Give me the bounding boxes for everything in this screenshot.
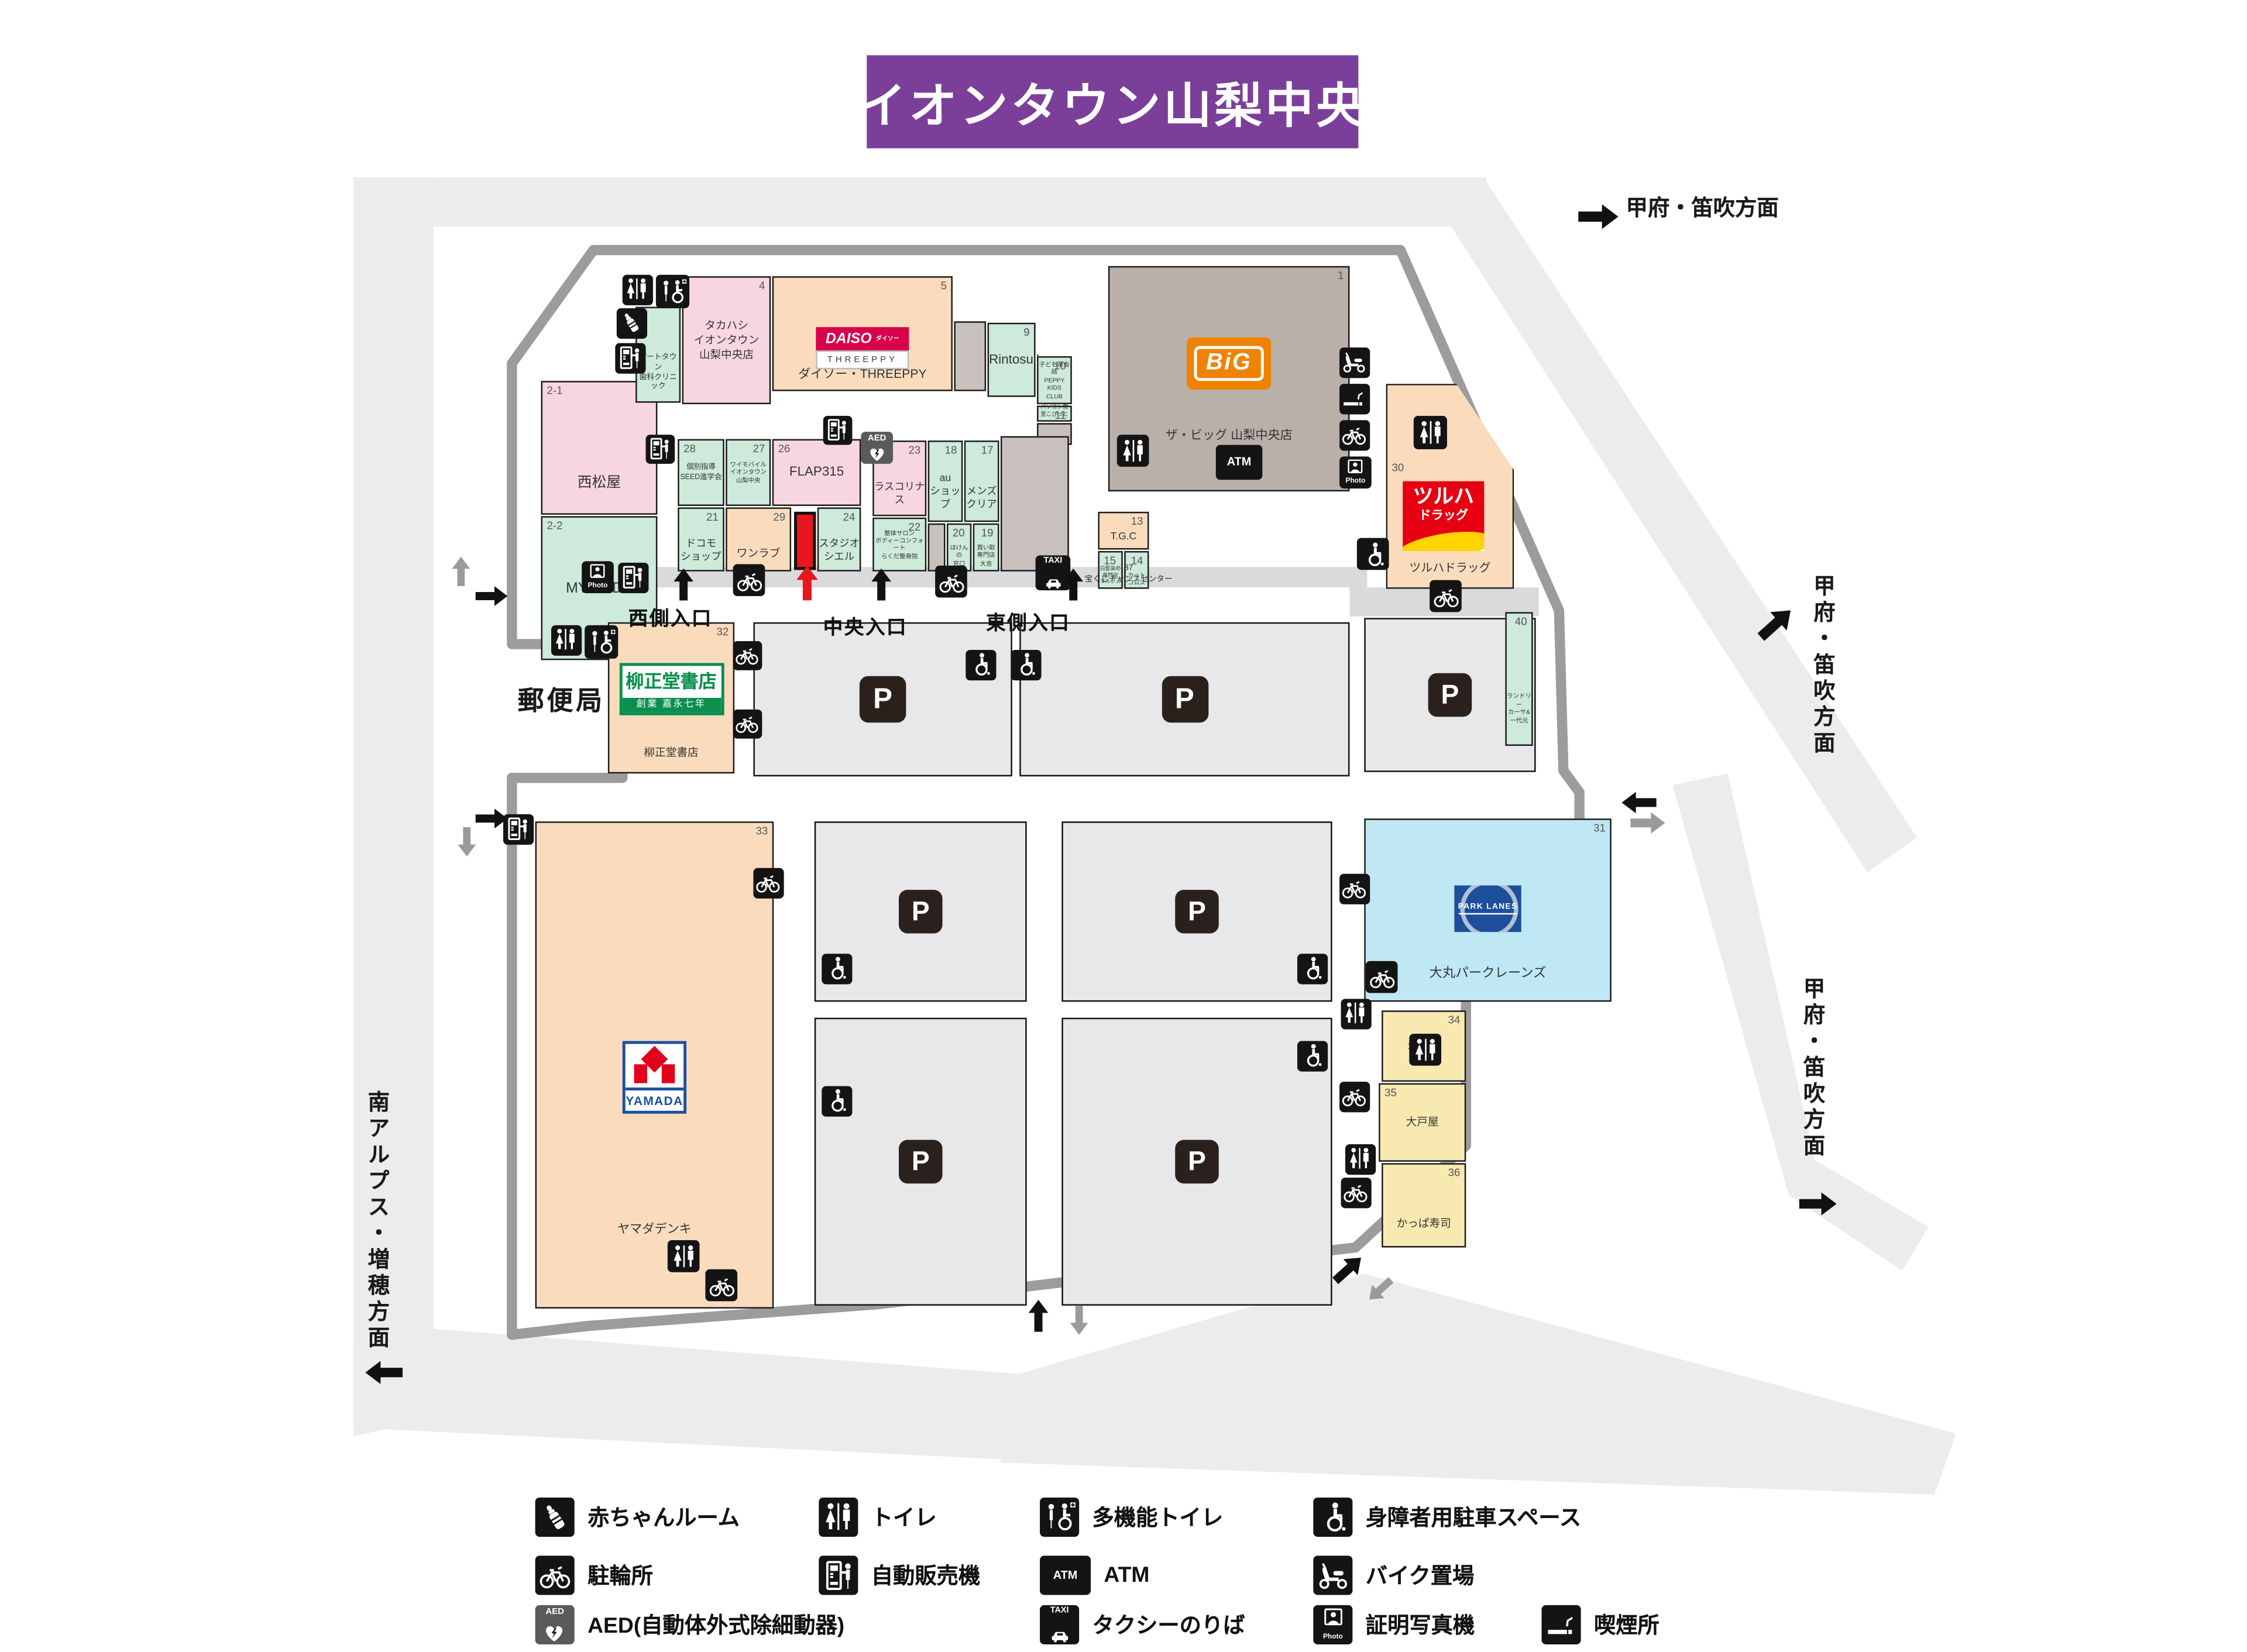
block-18: 18au ショップ <box>928 440 963 522</box>
block-label: ヤマダデンキ <box>537 1221 772 1237</box>
multitoilet-icon <box>656 275 689 308</box>
legend-item: Photo証明写真機 <box>1313 1605 1475 1644</box>
toilet-icon <box>551 625 582 656</box>
block-number: 31 <box>1593 823 1606 834</box>
block-36: 36かっぱ寿司 <box>1382 1163 1466 1247</box>
bicycle-icon <box>1339 420 1370 450</box>
lottery-kiosk-name: 宝くじチャンスセンター <box>1070 575 1187 586</box>
taxi-icon: TAXI <box>1040 1605 1079 1644</box>
road-arrow <box>451 826 483 858</box>
legend-label: 駐輪所 <box>587 1560 653 1591</box>
bicycle-icon <box>733 564 765 596</box>
block-13: 13T.G.C <box>1098 512 1149 550</box>
parking-icon: P <box>1162 676 1208 723</box>
parking-lot: P <box>1019 622 1349 776</box>
block-label: スタジオ シエル <box>819 538 860 564</box>
smoking-icon <box>1339 384 1370 414</box>
block-label: パソコン教室こぴっと <box>1039 404 1071 418</box>
block-label: メンズ クリア <box>966 486 998 512</box>
road-bottom-right <box>1001 1274 1956 1495</box>
wheelchair-icon <box>1011 650 1041 680</box>
block-label: 大丸パークレーンズ <box>1366 966 1610 983</box>
block-number: 18 <box>945 445 957 456</box>
block-number: 27 <box>753 443 765 455</box>
road-arrow <box>1063 1304 1095 1336</box>
toilet-icon <box>1345 1144 1376 1175</box>
aed-icon: AED <box>861 432 893 464</box>
parking-lot: P <box>1061 1018 1332 1306</box>
block-19: 19買い取 専門店 大吉 <box>973 524 999 572</box>
block-number: 30 <box>1392 462 1404 473</box>
atm-icon: ATM <box>1216 445 1263 480</box>
block-10: 10子ども英会話 PEPPY KIDS CLUB <box>1037 356 1072 404</box>
legend-label: 自動販売機 <box>871 1560 980 1591</box>
block-number: 32 <box>716 627 729 638</box>
block-label: かっぱ寿司 <box>1383 1217 1465 1231</box>
entrance-center-label: 中央入口 <box>823 611 908 640</box>
page: イオンタウン山梨中央 甲府・笛吹方面 甲府・笛吹方面 甲府・笛吹方面 南アルプス… <box>0 0 2247 1652</box>
block-label: 整体サロン ボディーコンフォート らくだ整骨院 <box>874 529 925 560</box>
block-20: 20ほけんの 窓口 <box>947 524 971 572</box>
block-number: 29 <box>773 512 785 523</box>
legend-item: 赤ちゃんルーム <box>535 1498 740 1537</box>
mall-map: イオンタウン山梨中央 甲府・笛吹方面 甲府・笛吹方面 甲府・笛吹方面 南アルプス… <box>0 0 2247 1651</box>
legend-item: 喫煙所 <box>1542 1605 1660 1644</box>
atm-icon: ATM <box>1040 1555 1091 1595</box>
toilet-icon <box>623 275 653 305</box>
bicycle-icon <box>733 641 762 670</box>
block-31: 31大丸パークレーンズPARK LANES <box>1364 818 1612 1001</box>
legend: 赤ちゃんルームトイレ多機能トイレ身障者用駐車スペース駐輪所自動販売機ATMATM… <box>521 1498 1743 1651</box>
block-5: 5ダイソー・THREEPPYDAISOダイソーTHREEPPY <box>772 276 953 391</box>
toilet-icon <box>668 1240 700 1272</box>
road-bottom-left <box>353 1329 1076 1463</box>
bicycle-icon <box>753 868 784 899</box>
bicycle-icon <box>1339 1082 1370 1112</box>
big-text: BiG <box>1194 346 1263 381</box>
legend-item: 駐輪所 <box>535 1555 653 1595</box>
block-number: 19 <box>981 528 994 539</box>
parking-icon: P <box>1175 890 1219 934</box>
block-label: Rintosull <box>989 352 1034 369</box>
multitoilet-icon <box>1040 1498 1079 1537</box>
block-label: ラスコリナス <box>874 481 925 507</box>
legend-label: ATM <box>1104 1563 1149 1588</box>
vending-icon <box>823 416 853 445</box>
block-plain <box>1001 436 1069 572</box>
legend-item: ATMATM <box>1040 1555 1149 1595</box>
direction-kofu-low: 甲府・笛吹方面 <box>1798 977 1828 1160</box>
bicycle-icon <box>1341 1178 1372 1208</box>
yanagido-sub: 創業 嘉永七年 <box>622 698 721 713</box>
legend-label: 証明写真機 <box>1366 1609 1475 1640</box>
block-29: 29ワンラブ <box>726 507 791 571</box>
photo-icon: Photo <box>1313 1605 1352 1644</box>
big-logo: BiG <box>1187 338 1271 390</box>
bicycle-icon <box>535 1555 575 1595</box>
legend-label: バイク置場 <box>1366 1560 1475 1591</box>
block-22: 22整体サロン ボディーコンフォート らくだ整骨院 <box>872 518 926 572</box>
block-35: 35大戸屋 <box>1379 1083 1466 1162</box>
road-arrow <box>788 564 826 602</box>
direction-minami: 南アルプス・増穂方面 <box>362 1090 393 1352</box>
road-arrow <box>1021 1298 1056 1333</box>
block-21: 21ドコモ ショップ <box>678 507 724 571</box>
road-arrow <box>363 1352 404 1393</box>
block-17: 17メンズ クリア <box>964 440 999 522</box>
parking-icon: P <box>1175 1140 1219 1184</box>
road-arrow <box>1576 195 1620 239</box>
lottery-kiosk-label: 37 宝くじチャンスセンター <box>1070 564 1187 586</box>
block-33: 33ヤマダデンキYAMADA <box>535 821 774 1309</box>
threeppy-text: THREEPPY <box>816 350 909 369</box>
block-28: 28個別指導 SEED進学会 <box>678 439 724 506</box>
yamada-mark <box>626 1044 683 1088</box>
yamada-logo: YAMADA <box>623 1041 686 1114</box>
block-label: 子ども英会話 PEPPY KIDS CLUB <box>1039 360 1071 400</box>
legend-item: 自動販売機 <box>819 1555 980 1595</box>
bicycle-icon <box>1430 580 1462 612</box>
block-label: ワイモバイル イオンタウン山梨中央 <box>727 460 769 484</box>
scooter-icon <box>1313 1555 1352 1595</box>
legend-item: バイク置場 <box>1313 1555 1474 1595</box>
block-26: 26FLAP315 <box>772 439 861 506</box>
road-top <box>434 177 1486 227</box>
block-24: 24スタジオ シエル <box>817 507 861 571</box>
block-number: 21 <box>706 512 719 523</box>
road-arrow <box>474 579 509 614</box>
parking-icon: P <box>899 1140 943 1184</box>
tsuruha-logo: ツルハドラッグ <box>1403 481 1484 551</box>
block-label: 大戸屋 <box>1380 1116 1465 1130</box>
vending-icon <box>646 435 675 464</box>
block-label: ランドリー カーサ& 一代元 <box>1507 693 1531 724</box>
tsuruha-text: ツルハ <box>1403 484 1484 509</box>
block-label: 西松屋 <box>542 474 656 493</box>
wheelchair-icon <box>1313 1498 1352 1537</box>
block-number: 26 <box>778 443 791 455</box>
block-plain <box>954 321 986 391</box>
block-32: 32柳正堂書店柳正堂書店創業 嘉永七年 <box>608 622 734 773</box>
block-number: 1 <box>1338 270 1344 281</box>
block-label: ワンラブ <box>727 547 790 561</box>
block-label: ドコモ ショップ <box>679 538 723 564</box>
wheelchair-icon <box>966 650 996 680</box>
legend-item: AEDAED(自動体外式除細動器) <box>535 1605 845 1644</box>
multitoilet-icon <box>585 625 618 659</box>
photo-icon: Photo <box>1339 456 1372 488</box>
smoking-icon <box>1542 1605 1581 1644</box>
block-number: 2-2 <box>547 521 563 532</box>
legend-item: トイレ <box>819 1498 936 1537</box>
parking-lot: P <box>815 1018 1027 1306</box>
legend-label: トイレ <box>871 1502 937 1532</box>
block-number: 5 <box>941 281 947 292</box>
map-title: イオンタウン山梨中央 <box>867 55 1358 148</box>
highlight-marker <box>794 512 816 570</box>
daiso-text: DAISO <box>826 331 872 346</box>
block-4: 4タカハシ イオンタウン 山梨中央店 <box>682 276 771 404</box>
block-number: 28 <box>683 443 696 455</box>
block-label: 個別指導 SEED進学会 <box>679 463 723 482</box>
block-label: ツルハドラッグ <box>1387 560 1513 576</box>
wheelchair-icon <box>1297 1041 1328 1072</box>
road-arrow <box>445 555 477 587</box>
block-number: 23 <box>909 445 921 456</box>
block-9: 9Rintosull <box>988 323 1036 397</box>
parking-lot: P <box>753 622 1012 776</box>
block-40: 40ランドリー カーサ& 一代元 <box>1505 612 1533 746</box>
block-number: 24 <box>843 512 855 523</box>
parklanes-text: PARK LANES <box>1458 903 1518 914</box>
bicycle-icon <box>705 1269 737 1302</box>
parking-lot: P <box>1061 821 1332 1001</box>
baby-icon <box>535 1498 575 1537</box>
block-plain <box>928 524 946 572</box>
block-number: 20 <box>953 528 965 539</box>
bicycle-icon <box>935 566 967 598</box>
legend-label: 赤ちゃんルーム <box>587 1502 740 1532</box>
block-number: 36 <box>1448 1168 1461 1179</box>
legend-label: AED(自動体外式除細動器) <box>587 1609 844 1640</box>
road-arrow <box>864 567 899 602</box>
wheelchair-icon <box>1357 538 1389 570</box>
block-11: 11パソコン教室こぴっと <box>1037 405 1072 421</box>
legend-label: 喫煙所 <box>1594 1609 1660 1640</box>
block-label: 買い取 専門店 大吉 <box>974 543 998 567</box>
block-label: ほけんの 窓口 <box>948 543 970 567</box>
bicycle-icon <box>1366 961 1398 993</box>
block-label: タカハシ イオンタウン 山梨中央店 <box>683 319 769 362</box>
baby-icon <box>617 308 647 339</box>
block-number: 40 <box>1515 617 1527 628</box>
vending-icon <box>819 1555 858 1595</box>
block-number: 33 <box>756 826 768 837</box>
bicycle-icon <box>1339 874 1370 904</box>
scooter-icon <box>1339 347 1370 378</box>
parking-icon: P <box>860 676 906 723</box>
block-label: 柳正堂書店 <box>609 746 733 760</box>
toilet-icon <box>1117 435 1149 467</box>
vending-icon <box>618 563 648 593</box>
block-label: FLAP315 <box>774 464 860 481</box>
direction-kofu-top: 甲府・笛吹方面 <box>1626 192 1779 222</box>
legend-item: 多機能トイレ <box>1040 1498 1223 1537</box>
legend-item: 身障者用駐車スペース <box>1313 1498 1581 1537</box>
toilet-icon <box>1409 1034 1441 1066</box>
vending-icon <box>615 343 645 374</box>
block-number: 34 <box>1448 1015 1461 1026</box>
parking-icon: P <box>899 890 943 934</box>
block-label: au ショップ <box>929 472 961 512</box>
block-number: 13 <box>1131 516 1143 527</box>
parklanes-logo: PARK LANES <box>1454 886 1521 932</box>
direction-kofu-mid: 甲府・笛吹方面 <box>1808 574 1838 758</box>
road-arrow <box>666 567 701 602</box>
yanagido-text: 柳正堂書店 <box>622 666 721 698</box>
block-label: T.G.C <box>1100 531 1147 544</box>
aed-icon: AED <box>535 1605 575 1644</box>
block-27: 27ワイモバイル イオンタウン山梨中央 <box>726 439 771 506</box>
wheelchair-icon <box>822 1086 852 1117</box>
photo-icon: Photo <box>582 561 614 593</box>
lottery-kiosk-number: 37 <box>1070 564 1187 575</box>
tsuruha-text2: ドラッグ <box>1403 508 1484 521</box>
wheelchair-icon <box>822 954 852 984</box>
block-number: 4 <box>759 281 765 292</box>
legend-label: 多機能トイレ <box>1092 1502 1224 1532</box>
road-arrow <box>1798 1183 1839 1224</box>
entrance-west-label: 西側入口 <box>628 602 713 631</box>
road-arrow <box>1629 804 1667 842</box>
legend-label: 身障者用駐車スペース <box>1366 1502 1581 1532</box>
block-number: 2-1 <box>547 386 563 397</box>
entrance-east-label: 東側入口 <box>986 606 1070 635</box>
toilet-icon <box>1414 416 1447 449</box>
parking-icon: P <box>1428 673 1472 717</box>
block-number: 17 <box>981 445 994 456</box>
yamada-text: YAMADA <box>626 1087 683 1111</box>
post-office-label: 郵便局 <box>518 680 605 718</box>
toilet-icon <box>1341 999 1372 1029</box>
bicycle-icon <box>733 710 762 739</box>
legend-item: TAXIタクシーのりば <box>1040 1605 1245 1644</box>
block-number: 35 <box>1384 1087 1397 1099</box>
daiso-logo: DAISOダイソーTHREEPPY <box>816 327 909 369</box>
wheelchair-icon <box>1297 954 1328 984</box>
toilet-icon <box>819 1498 858 1537</box>
legend-label: タクシーのりば <box>1092 1609 1245 1640</box>
yanagi-logo: 柳正堂書店創業 嘉永七年 <box>619 663 724 715</box>
block-number: 9 <box>1023 327 1029 338</box>
